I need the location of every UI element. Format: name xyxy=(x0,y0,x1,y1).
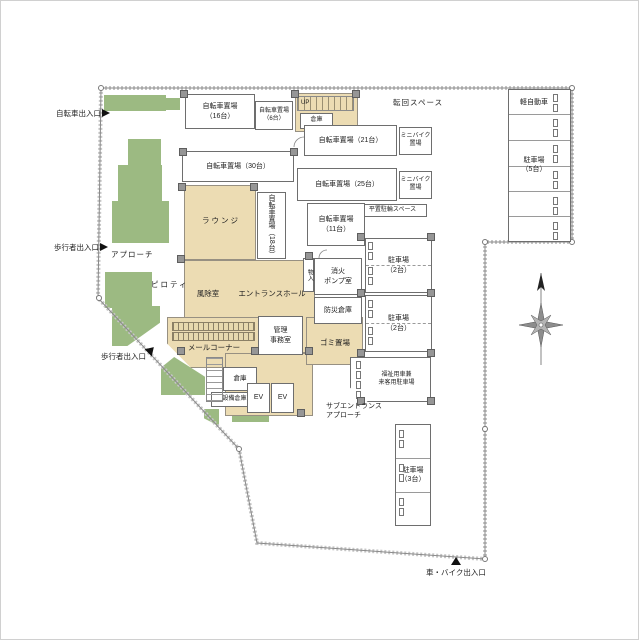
room-label: ラウンジ xyxy=(202,216,240,226)
wheel-stop-icon xyxy=(368,300,373,318)
label-bicycle-entrance: 自転車出入口 xyxy=(56,109,101,119)
entrance-arrow-icon xyxy=(451,557,461,565)
lounge-label: ラウンジ xyxy=(191,216,251,226)
wall-pillar xyxy=(179,148,187,156)
wall-pillar xyxy=(357,289,365,297)
wall-pillar xyxy=(291,90,299,98)
label-approach: アプローチ xyxy=(111,250,154,260)
parking-divider xyxy=(396,492,430,493)
room-label: 自転車置場（25台） xyxy=(315,180,379,189)
area-label: 転回スペース xyxy=(393,98,443,107)
wall-pillar xyxy=(297,409,305,417)
room-label: 駐車場 （5台） xyxy=(522,156,547,175)
room-label: 軽自動車 xyxy=(520,98,548,107)
room-label: EV xyxy=(254,393,263,402)
wheel-stop-icon xyxy=(399,430,404,448)
stairs-up-label: UP xyxy=(301,99,309,107)
room-closet: 物入 xyxy=(303,258,314,292)
wall-pillar xyxy=(427,349,435,357)
room-label: 駐車場 （3台） xyxy=(401,466,426,484)
wheel-stop-icon xyxy=(553,145,558,163)
room-label: 平置駐輪スペース xyxy=(369,207,416,215)
wheel-stop-icon xyxy=(553,171,558,189)
wall-pillar xyxy=(180,90,188,98)
room-flat-bike-space: 平置駐輪スペース xyxy=(358,204,427,217)
area-label: サブエントランス アプローチ xyxy=(326,403,382,419)
entrance-label: 自転車出入口 xyxy=(56,109,101,118)
entrance-hall-label: エントランスホール xyxy=(229,289,315,299)
wheel-stop-icon xyxy=(368,242,373,260)
room-label: ミニバイク 置場 xyxy=(401,133,431,149)
wheel-stop-icon xyxy=(553,94,558,112)
room-minibike-upper: ミニバイク 置場 xyxy=(399,127,432,155)
wall-pillar xyxy=(290,148,298,156)
parking-divider xyxy=(396,458,430,459)
room-bike-parking-6: 自転車置場 （6台） xyxy=(255,101,293,130)
room-admin-office: 管理 事務室 xyxy=(258,316,303,355)
room-label: エントランスホール xyxy=(238,289,305,299)
room-label: 福祉用車兼 来客用駐車場 xyxy=(378,372,414,388)
wheel-stop-icon xyxy=(399,464,404,482)
label-turning-space: 転回スペース xyxy=(393,98,443,108)
room-disaster-storage: 防災倉庫 xyxy=(314,297,362,324)
wall-pillar xyxy=(177,347,185,355)
label-sub-entrance: サブエントランス アプローチ xyxy=(326,402,382,421)
wheel-stop-icon xyxy=(368,267,373,285)
wheel-stop-icon xyxy=(368,327,373,345)
room-label: 自転車置場（18台） xyxy=(267,194,276,258)
room-label: メールコーナー xyxy=(188,343,240,353)
wall-pillar xyxy=(250,183,258,191)
label-pedestrian-entrance: 歩行者出入口 xyxy=(54,243,99,253)
mailbox-lockers xyxy=(172,322,255,331)
room-label: 自転車置場 （16台） xyxy=(203,102,238,120)
room-label: 倉庫 xyxy=(234,375,247,383)
room-label: 管理 事務室 xyxy=(270,326,291,344)
wall-pillar xyxy=(305,347,313,355)
stairs-bottom xyxy=(206,357,223,402)
wheel-stop-icon xyxy=(553,119,558,137)
room-elevator-2: EV xyxy=(271,383,294,413)
room-label: 倉庫 xyxy=(310,117,322,125)
compass-icon xyxy=(519,273,563,365)
parking-welfare-visitor: 福祉用車兼 来客用駐車場 xyxy=(350,357,431,402)
label-pedestrian-exit: 歩行者出入口 xyxy=(101,352,146,362)
windbreak-label: 風除室 xyxy=(187,289,229,299)
room-label: 風除室 xyxy=(197,289,220,299)
parking-5-label: 駐車場 （5台） xyxy=(510,156,558,175)
wall-pillar xyxy=(427,233,435,241)
room-label: ミニバイク 置場 xyxy=(401,177,431,193)
room-elevator-1: EV xyxy=(247,383,270,413)
parking-divider xyxy=(509,140,570,141)
parking-divider xyxy=(509,216,570,217)
wall-pillar xyxy=(177,255,185,263)
room-label: 自転車置場 （6台） xyxy=(259,108,289,124)
mailbox-lockers xyxy=(172,332,255,341)
parking-divider xyxy=(509,191,570,192)
wall-pillar xyxy=(305,252,313,260)
room-bike-parking-16: 自転車置場 （16台） xyxy=(185,94,255,129)
wheel-stop-icon xyxy=(553,222,558,240)
kei-car-label: 軽自動車 xyxy=(510,98,558,107)
area-label: ピロティ xyxy=(151,280,189,289)
room-bike-parking-18: 自転車置場（18台） xyxy=(257,192,286,259)
wall-pillar xyxy=(357,233,365,241)
wheel-stop-icon xyxy=(399,498,404,516)
wall-pillar xyxy=(178,183,186,191)
wall-pillar xyxy=(357,349,365,357)
parking-divider xyxy=(509,114,570,115)
area-label: アプローチ xyxy=(111,250,154,259)
room-label: 自転車置場（30台） xyxy=(206,162,270,171)
room-bike-parking-21: 自転車置場（21台） xyxy=(304,125,397,156)
wall-pillar xyxy=(427,397,435,405)
room-label: 自転車置場（21台） xyxy=(319,136,383,145)
wall-pillar xyxy=(251,347,259,355)
wheel-stop-icon xyxy=(356,361,361,379)
entrance-arrow-icon xyxy=(100,243,108,251)
parking-divider xyxy=(366,265,431,266)
room-label: 設備倉庫 xyxy=(222,396,246,404)
label-car-bike-entrance: 車・バイク出入口 xyxy=(426,568,486,578)
wall-pillar xyxy=(427,289,435,297)
label-piloti: ピロティ xyxy=(151,280,189,290)
room-fire-pump: 消火 ポンプ室 xyxy=(314,258,362,295)
room-label: 消火 ポンプ室 xyxy=(324,267,352,285)
room-label: ゴミ置場 xyxy=(320,338,350,348)
entrance-label: 車・バイク出入口 xyxy=(426,568,486,577)
room-bike-parking-25: 自転車置場（25台） xyxy=(297,168,397,201)
wall-pillar xyxy=(352,90,360,98)
garbage-label: ゴミ置場 xyxy=(309,338,361,348)
room-bike-parking-30: 自転車置場（30台） xyxy=(182,151,294,182)
entrance-arrow-icon xyxy=(102,109,110,117)
entrance-label: 歩行者出入口 xyxy=(54,243,99,252)
room-label: EV xyxy=(278,393,287,402)
site-plan: 自転車置場 （16台） 自転車置場 （6台） UP 倉庫 自転車置場（21台） … xyxy=(0,0,639,640)
entrance-label: 歩行者出入口 xyxy=(101,352,146,361)
room-label: 防災倉庫 xyxy=(324,306,352,315)
wheel-stop-icon xyxy=(553,197,558,215)
room-minibike-lower: ミニバイク 置場 xyxy=(399,171,432,199)
room-label: 物入 xyxy=(305,269,313,281)
room-label: 自転車置場 （11台） xyxy=(319,215,354,233)
parking-divider xyxy=(366,323,431,324)
